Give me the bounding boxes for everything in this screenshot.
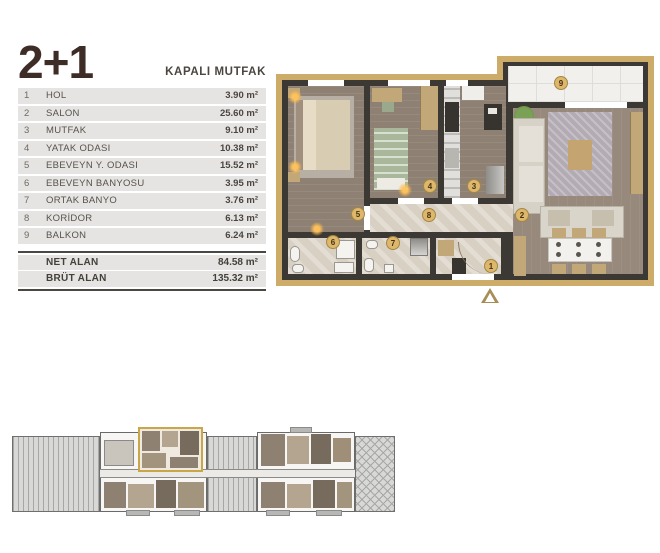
- room-area: 25.60 m²: [220, 108, 266, 119]
- room-badge-7: 7: [386, 236, 400, 250]
- bathroom-sink: [366, 240, 378, 249]
- keyplan-unit-block: [261, 482, 285, 508]
- sofa-cushion: [519, 166, 543, 202]
- room-badge-9: 9: [554, 76, 568, 90]
- room-number: 9: [18, 230, 46, 241]
- entrance-opening: [452, 274, 494, 280]
- keyplan-unit-block: [104, 482, 126, 508]
- window-opening: [308, 80, 344, 86]
- plate: [556, 242, 561, 247]
- dining-chair: [592, 228, 606, 238]
- room-number: 3: [18, 125, 46, 136]
- room-name: MUTFAK: [46, 125, 225, 136]
- dining-chair: [592, 264, 606, 274]
- room-number: 1: [18, 90, 46, 101]
- room-name: BALKON: [46, 230, 225, 241]
- kitchen-door-opening: [452, 198, 478, 204]
- dining-chair: [572, 264, 586, 274]
- keyplan-balcony-stub: [266, 510, 290, 516]
- table-row: 2SALON25.60 m²: [18, 106, 266, 122]
- lamp-glow: [288, 160, 302, 174]
- keyplan-unit-block: [128, 484, 154, 508]
- sofa-cushion: [519, 126, 543, 162]
- room-area: 6.24 m²: [225, 230, 266, 241]
- room-name: EBEVEYN Y. ODASI: [46, 160, 220, 171]
- room-badge-8: 8: [422, 208, 436, 222]
- room-area: 9.10 m²: [225, 125, 266, 136]
- room-badge-5: 5: [351, 207, 365, 221]
- lamp-glow: [398, 183, 412, 197]
- washing-machine: [410, 238, 428, 256]
- keyplan-roof-left: [12, 436, 100, 512]
- keyplan-unit-block: [311, 434, 331, 464]
- table-row: 3MUTFAK9.10 m²: [18, 123, 266, 139]
- coffee-table: [568, 140, 592, 170]
- net-area-value: 84.58 m²: [218, 257, 266, 268]
- bathroom-sink: [290, 246, 300, 262]
- room-area: 3.90 m²: [225, 90, 266, 101]
- room-area-table: 1HOL3.90 m² 2SALON25.60 m² 3MUTFAK9.10 m…: [18, 88, 266, 244]
- table-row: 5EBEVEYN Y. ODASI15.52 m²: [18, 158, 266, 174]
- room-number: 4: [18, 143, 46, 154]
- room-area: 3.76 m²: [225, 195, 266, 206]
- room-area: 15.52 m²: [220, 160, 266, 171]
- keyplan-unit-block: [313, 480, 335, 508]
- corridor-floor: [370, 204, 513, 232]
- wardrobe: [420, 86, 438, 130]
- bidet: [384, 264, 394, 273]
- room-area: 6.13 m²: [225, 213, 266, 224]
- room-badge-2: 2: [515, 208, 529, 222]
- toilet: [364, 258, 374, 272]
- room-number: 5: [18, 160, 46, 171]
- entry-closet: [438, 240, 454, 256]
- plate: [596, 252, 601, 257]
- gross-area-label: BRÜT ALAN: [18, 273, 107, 284]
- title-row: 2+1 KAPALI MUTFAK: [18, 36, 266, 82]
- keyplan-balcony-stub: [290, 427, 312, 433]
- desk-chair: [382, 102, 394, 112]
- room-name: HOL: [46, 90, 225, 101]
- fridge: [486, 166, 504, 194]
- kitchen-cabinet: [462, 86, 484, 100]
- table-row: 4YATAK ODASI10.38 m²: [18, 141, 266, 157]
- brochure-page: 2+1 KAPALI MUTFAK 1HOL3.90 m² 2SALON25.6…: [0, 0, 660, 553]
- kitchen-sink: [445, 148, 459, 168]
- keyplan-balcony-stub: [126, 510, 150, 516]
- dining-chair: [552, 228, 566, 238]
- table-row: 6EBEVEYN BANYOSU3.95 m²: [18, 176, 266, 192]
- kitchen-type-label: KAPALI MUTFAK: [165, 66, 266, 82]
- table-row: 8KORİDOR6.13 m²: [18, 211, 266, 227]
- table-row: 7ORTAK BANYO3.76 m²: [18, 193, 266, 209]
- entrance-arrow-icon-inner: [485, 293, 495, 302]
- keyplan-unit-room: [170, 457, 198, 468]
- unit-info-panel: 2+1 KAPALI MUTFAK 1HOL3.90 m² 2SALON25.6…: [18, 36, 266, 291]
- area-summary: NET ALAN84.58 m² BRÜT ALAN135.32 m²: [18, 251, 266, 291]
- bathtub: [334, 262, 354, 273]
- dining-chair: [572, 228, 586, 238]
- table-row: 9BALKON6.24 m²: [18, 228, 266, 244]
- buffet-cabinet: [514, 236, 526, 276]
- table-setting: [488, 108, 497, 114]
- unit-type-title: 2+1: [18, 42, 93, 82]
- bedroom-door-opening: [398, 198, 424, 204]
- keyplan-unit-room: [162, 431, 178, 447]
- keyplan-unit-block: [261, 434, 285, 466]
- lamp-glow: [288, 90, 302, 104]
- net-area-label: NET ALAN: [18, 257, 99, 268]
- room-number: 7: [18, 195, 46, 206]
- daybed-pillow: [592, 210, 614, 226]
- keyplan-roof-right: [355, 436, 395, 512]
- toilet: [292, 264, 304, 273]
- keyplan-unit-room: [180, 431, 199, 455]
- room-number: 2: [18, 108, 46, 119]
- net-area-row: NET ALAN84.58 m²: [18, 255, 266, 271]
- keyplan-unit-block: [287, 484, 311, 508]
- room-area: 3.95 m²: [225, 178, 266, 189]
- keyplan-balcony-stub: [174, 510, 200, 516]
- gross-area-value: 135.32 m²: [212, 273, 266, 284]
- bed-pillows: [303, 100, 316, 170]
- room-name: EBEVEYN BANYOSU: [46, 178, 225, 189]
- room-name: YATAK ODASI: [46, 143, 220, 154]
- keyplan-unit-block: [337, 482, 352, 508]
- plate: [556, 252, 561, 257]
- keyplan-core: [104, 440, 134, 466]
- master-door-opening: [364, 206, 370, 230]
- room-badge-4: 4: [423, 179, 437, 193]
- lamp-glow: [310, 222, 324, 236]
- keyplan-unit-block: [178, 482, 204, 508]
- room-badge-6: 6: [326, 235, 340, 249]
- keyplan-unit-block: [287, 436, 309, 464]
- dining-chair: [552, 264, 566, 274]
- balcony-floor: [508, 66, 643, 102]
- room-badge-1: 1: [484, 259, 498, 273]
- daybed-pillow: [548, 210, 570, 226]
- room-number: 6: [18, 178, 46, 189]
- plate: [576, 252, 581, 257]
- keyplan-unit-room: [142, 431, 160, 451]
- balcony-door-opening: [565, 102, 627, 108]
- keyplan-balcony-stub: [316, 510, 342, 516]
- plate: [576, 242, 581, 247]
- room-badge-3: 3: [467, 179, 481, 193]
- room-number: 8: [18, 213, 46, 224]
- keyplan-unit-block: [156, 480, 176, 508]
- room-name: KORİDOR: [46, 213, 225, 224]
- keyplan-unit-room: [142, 453, 166, 468]
- keyplan-unit-block: [333, 438, 351, 462]
- plate: [596, 242, 601, 247]
- stove: [445, 102, 459, 132]
- table-row: 1HOL3.90 m²: [18, 88, 266, 104]
- desk: [372, 88, 402, 102]
- gross-area-row: BRÜT ALAN135.32 m²: [18, 271, 266, 287]
- tv-unit: [630, 112, 643, 194]
- room-name: ORTAK BANYO: [46, 195, 225, 206]
- room-area: 10.38 m²: [220, 143, 266, 154]
- room-name: SALON: [46, 108, 220, 119]
